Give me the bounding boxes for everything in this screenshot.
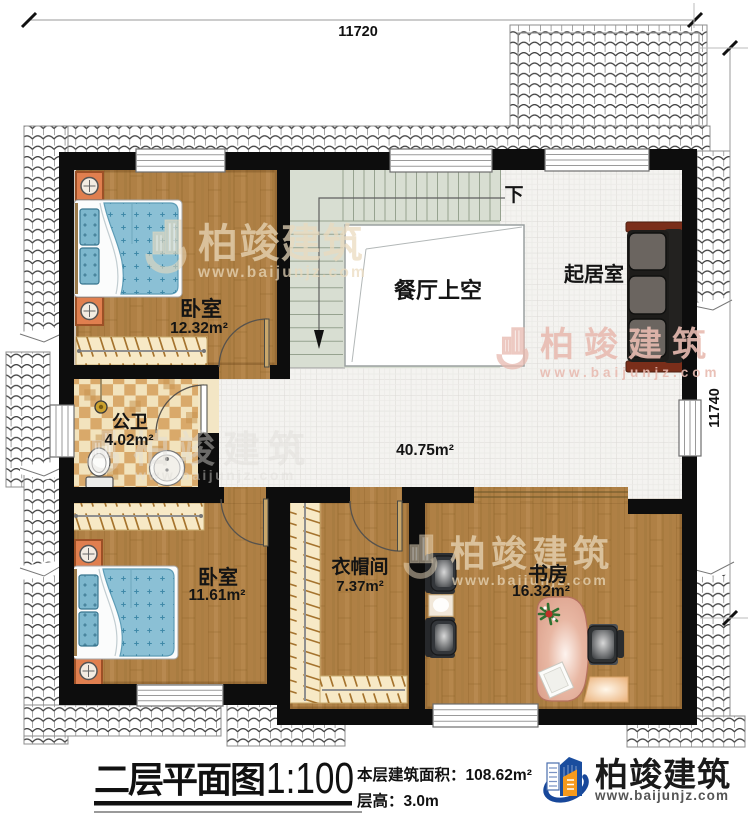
svg-text:层高：3.0m: 层高：3.0m: [357, 791, 439, 810]
svg-text:衣帽间: 衣帽间: [331, 555, 388, 578]
svg-text:12.32m²: 12.32m²: [170, 320, 228, 337]
svg-text:柏竣建筑: 柏竣建筑: [198, 222, 364, 266]
svg-text:二层平面图: 二层平面图: [94, 759, 264, 800]
svg-text:1:100: 1:100: [266, 754, 354, 803]
svg-text:www.baijunjz.com: www.baijunjz.com: [539, 365, 721, 380]
svg-text:www.baijunjz.com: www.baijunjz.com: [197, 264, 367, 281]
svg-text:11.61m²: 11.61m²: [189, 587, 246, 604]
svg-text:40.75m²: 40.75m²: [396, 442, 454, 459]
svg-text:公卫: 公卫: [112, 412, 148, 432]
svg-text:7.37m²: 7.37m²: [336, 578, 384, 595]
svg-text:www.baijunjz.com: www.baijunjz.com: [594, 788, 729, 803]
svg-text:起居室: 起居室: [563, 262, 624, 286]
svg-text:本层建筑面积：108.62m²: 本层建筑面积：108.62m²: [357, 765, 532, 784]
svg-text:www.baijunjz.com: www.baijunjz.com: [134, 467, 296, 483]
svg-text:11720: 11720: [338, 24, 378, 40]
svg-text:柏竣建筑: 柏竣建筑: [133, 428, 313, 470]
svg-text:4.02m²: 4.02m²: [104, 432, 153, 449]
svg-text:下: 下: [504, 185, 523, 206]
svg-text:11740: 11740: [707, 388, 723, 428]
svg-text:16.32m²: 16.32m²: [512, 583, 570, 600]
svg-text:卧室: 卧室: [180, 297, 222, 321]
svg-text:餐厅上空: 餐厅上空: [394, 278, 482, 303]
svg-text:柏竣建筑: 柏竣建筑: [540, 325, 716, 364]
svg-text:卧室: 卧室: [198, 565, 238, 589]
